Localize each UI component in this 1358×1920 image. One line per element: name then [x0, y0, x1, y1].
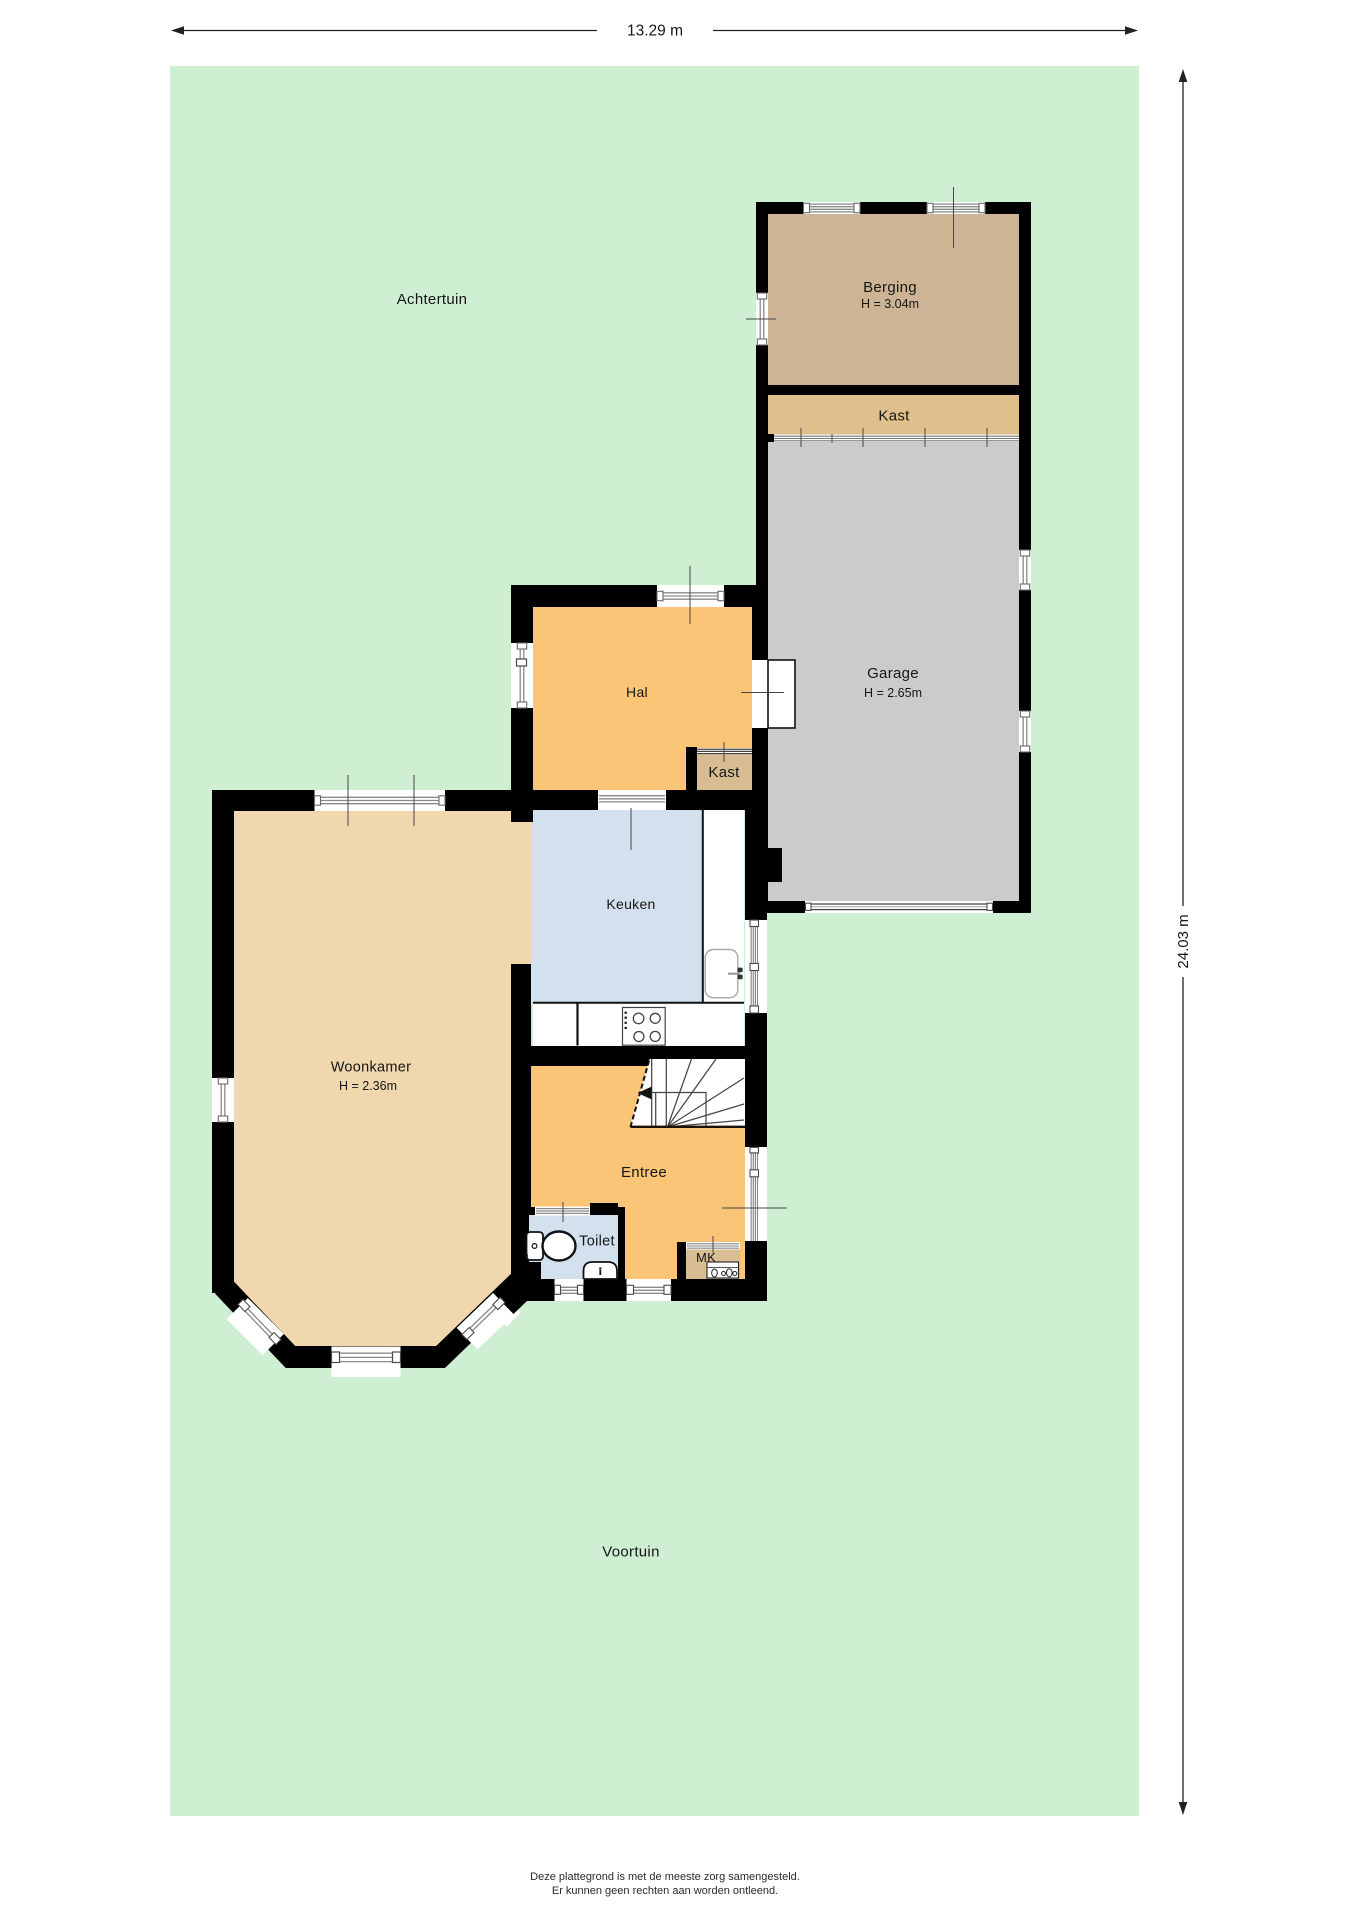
svg-text:Deze plattegrond is met de mee: Deze plattegrond is met de meeste zorg s…	[530, 1871, 800, 1883]
svg-text:Berging: Berging	[863, 279, 917, 296]
svg-text:Kast: Kast	[878, 408, 910, 425]
svg-text:Voortuin: Voortuin	[602, 1544, 659, 1561]
svg-text:H = 2.36m: H = 2.36m	[339, 1079, 397, 1093]
svg-text:Woonkamer: Woonkamer	[331, 1060, 412, 1076]
svg-text:H = 3.04m: H = 3.04m	[861, 297, 919, 311]
svg-text:Entree: Entree	[621, 1164, 667, 1181]
svg-text:13.29 m: 13.29 m	[627, 23, 683, 40]
svg-text:Toilet: Toilet	[579, 1234, 615, 1250]
svg-text:MK: MK	[696, 1250, 716, 1265]
svg-text:Er kunnen geen rechten aan wor: Er kunnen geen rechten aan worden ontlee…	[552, 1885, 778, 1897]
svg-text:Hal: Hal	[626, 684, 648, 700]
svg-text:Garage: Garage	[867, 665, 919, 682]
svg-text:Keuken: Keuken	[606, 896, 655, 912]
svg-text:H = 2.65m: H = 2.65m	[864, 686, 922, 700]
svg-text:Achtertuin: Achtertuin	[397, 291, 468, 308]
svg-text:24.03 m: 24.03 m	[1175, 914, 1192, 968]
svg-text:Kast: Kast	[708, 764, 740, 781]
